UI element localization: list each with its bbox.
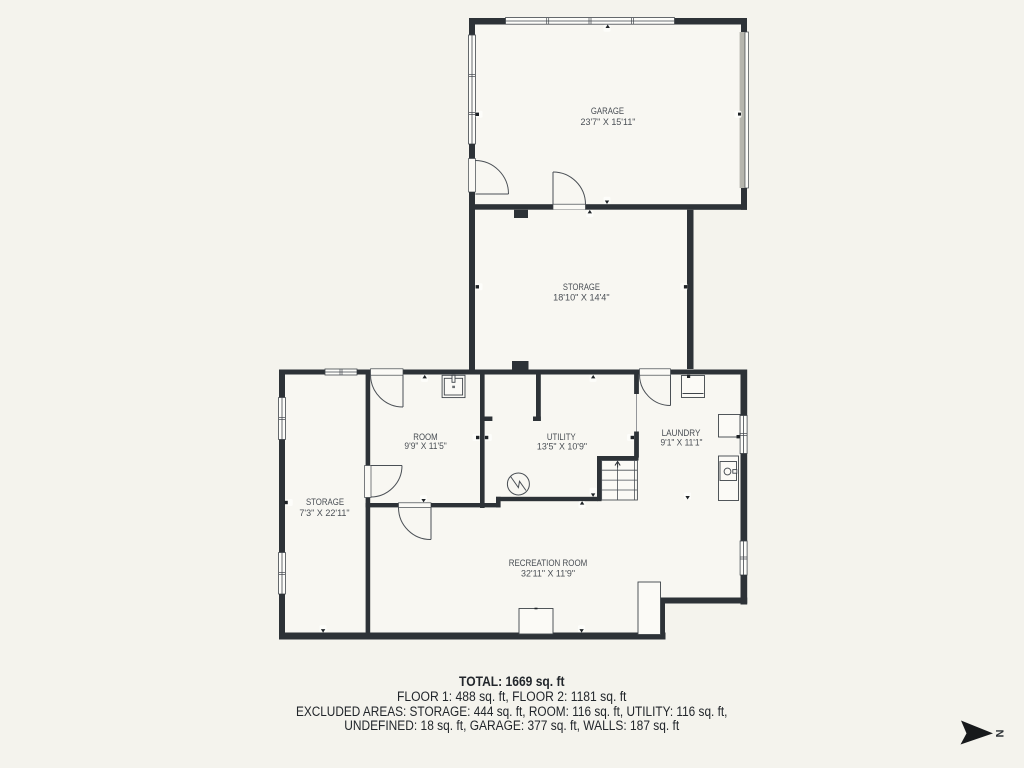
svg-text:9'1" X 11'1": 9'1" X 11'1" <box>660 438 702 448</box>
svg-text:EXCLUDED AREAS: STORAGE: 444 s: EXCLUDED AREAS: STORAGE: 444 sq. ft, ROO… <box>296 704 728 719</box>
svg-text:STORAGE: STORAGE <box>306 497 344 508</box>
svg-text:RECREATION ROOM: RECREATION ROOM <box>509 558 588 569</box>
svg-text:UTILITY: UTILITY <box>547 432 576 442</box>
svg-text:23'7" X 15'11": 23'7" X 15'11" <box>581 117 636 127</box>
svg-text:9'9" X 11'5": 9'9" X 11'5" <box>404 441 446 451</box>
svg-text:7'3" X 22'11": 7'3" X 22'11" <box>299 508 349 518</box>
svg-text:GARAGE: GARAGE <box>591 106 624 117</box>
svg-text:LAUNDRY: LAUNDRY <box>662 428 701 438</box>
svg-text:UNDEFINED: 18 sq. ft, GARAGE:: UNDEFINED: 18 sq. ft, GARAGE: 377 sq. ft… <box>344 718 679 733</box>
svg-text:N: N <box>993 730 1005 738</box>
svg-text:13'5" X 10'9": 13'5" X 10'9" <box>537 442 587 452</box>
svg-text:TOTAL: 1669 sq. ft: TOTAL: 1669 sq. ft <box>459 673 565 689</box>
svg-text:STORAGE: STORAGE <box>563 282 600 292</box>
svg-text:18'10" X 14'4": 18'10" X 14'4" <box>553 293 609 303</box>
svg-text:FLOOR 1: 488 sq. ft, FLOOR 2:: FLOOR 1: 488 sq. ft, FLOOR 2: 1181 sq. f… <box>397 689 627 704</box>
svg-text:32'11" X 11'9": 32'11" X 11'9" <box>521 569 575 579</box>
